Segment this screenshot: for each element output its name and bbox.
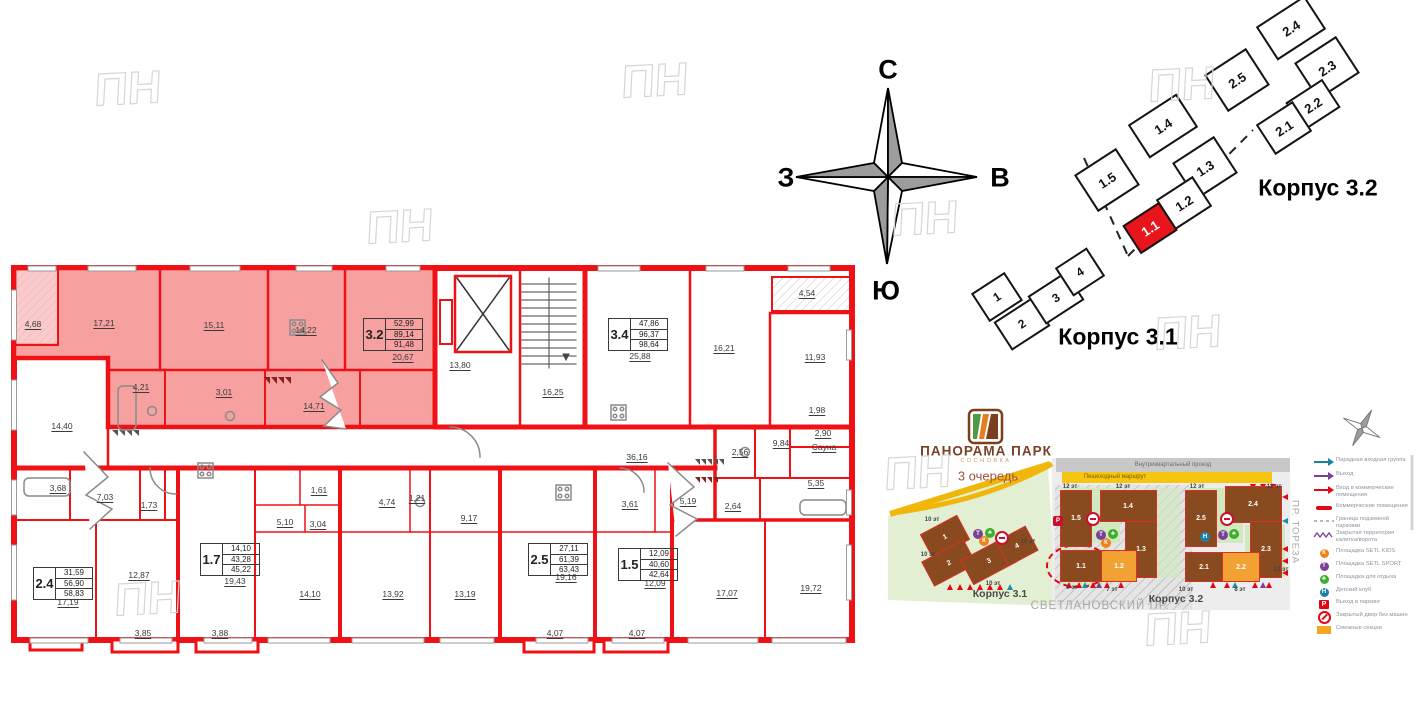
driveway-label: Внутриквартальный проезд xyxy=(1135,462,1212,468)
apartment-id: 2.5 xyxy=(529,544,551,575)
developer-watermark: ПН xyxy=(620,51,689,108)
logo-phase: 3 очередь xyxy=(958,469,1018,484)
room-area-label: 16,21 xyxy=(713,343,734,353)
legend-item-label: Коммерческие помещения xyxy=(1336,503,1408,510)
street-toreza-label: ПР. ТОРЕЗА xyxy=(1290,500,1301,564)
apartment-id: 3.2 xyxy=(364,319,386,350)
developer-watermark: ПН xyxy=(365,197,434,254)
scheme-korpus-32-title: Корпус 3.2 xyxy=(1258,175,1377,202)
site-building-2.1: 2.1 xyxy=(1185,552,1224,582)
room-area-label: 2,90 xyxy=(815,428,832,438)
apartment-area-value: 31,59 xyxy=(56,568,92,579)
room-area-label: 3,88 xyxy=(212,628,229,638)
apartment-area-value: 89,14 xyxy=(386,330,422,341)
apartment-area-value: 14,10 xyxy=(223,544,259,555)
apartment-area-value: 96,37 xyxy=(631,330,667,341)
legend-circle-icon: ♣ xyxy=(1312,574,1336,584)
amenity-icon: К xyxy=(979,536,989,546)
apartment-id: 2.4 xyxy=(34,568,56,599)
apartment-area-value: 63,43 xyxy=(551,565,587,575)
apartment-area-value: 98,64 xyxy=(631,340,667,350)
apartment-area-value: 42,64 xyxy=(641,570,677,580)
logo-mark xyxy=(969,410,1002,443)
site-building-1.4: 1.4 xyxy=(1100,490,1157,522)
room-area-label: 3,01 xyxy=(216,387,233,397)
developer-watermark: ПН xyxy=(1153,303,1222,360)
room-area-label: 17,07 xyxy=(716,588,737,598)
legend-dash-icon xyxy=(1312,516,1336,526)
legend-arrow-icon xyxy=(1312,471,1336,481)
floor-count-label: 7 эт xyxy=(1106,587,1117,593)
legend-item-label: Закрытый двор без машин xyxy=(1336,612,1408,619)
room-area-label: 17,21 xyxy=(93,318,114,328)
room-area-label: 11,93 xyxy=(805,352,826,362)
developer-watermark: ПН xyxy=(1143,599,1212,656)
apartment-table-2.4: 2.431,5956,9058,83 xyxy=(33,567,93,600)
apartment-id: 3.4 xyxy=(609,319,631,350)
site-building-1.2: 1.2 xyxy=(1101,550,1137,582)
room-area-label: 9,84 xyxy=(773,438,790,448)
apartment-area-value: 56,90 xyxy=(56,579,92,590)
amenity-icon: ♣ xyxy=(1229,529,1239,539)
apartment-table-1.7: 1.714,1043,2845,22 xyxy=(200,543,260,576)
legend-nocar-icon xyxy=(1312,612,1336,622)
legend-item: НДетский клуб xyxy=(1312,587,1412,597)
compass-west-label: З xyxy=(778,163,795,194)
site-korpus-31-label: Корпус 3.1 xyxy=(973,588,1028,600)
legend-circle-icon: Т xyxy=(1312,561,1336,571)
floor-count-label: 12 эт xyxy=(1190,484,1205,490)
room-area-label: 14,40 xyxy=(51,421,72,431)
compass-north-label: С xyxy=(878,55,898,86)
parking-exit-icon: P xyxy=(1053,516,1063,526)
room-area-label: 1,21 xyxy=(409,493,426,503)
room-area-label: 2,56 xyxy=(732,447,749,457)
legend-parking-icon: P xyxy=(1312,599,1336,609)
floor-count-label: 8 эт xyxy=(1234,587,1245,593)
room-area-label: 5,10 xyxy=(277,517,294,527)
legend-item-label: Вход в коммерческие помещения xyxy=(1336,485,1412,499)
floor-count-label: 12 эт xyxy=(1063,484,1078,490)
room-area-label: 5,35 xyxy=(808,478,825,488)
floor-count-label: 12 эт xyxy=(1274,567,1289,573)
room-area-label: 1,98 xyxy=(809,405,826,415)
site-building-2.2: 2.2 xyxy=(1222,552,1260,582)
no-car-icon xyxy=(1220,512,1234,526)
logo-subtitle: СОСНОВКА xyxy=(961,458,1012,464)
room-area-label: 13,80 xyxy=(449,360,470,370)
legend-bar-icon xyxy=(1312,503,1336,513)
apartment-id: 1.5 xyxy=(619,549,641,580)
apartment-area-value: 12,09 xyxy=(641,549,677,560)
room-area-label: 14,71 xyxy=(303,401,324,411)
apartment-area-value: 27,11 xyxy=(551,544,587,555)
legend-item-label: Выход в паркинг xyxy=(1336,599,1380,606)
room-area-label: 4,68 xyxy=(25,319,42,329)
floor-count-label: 12 эт xyxy=(1267,484,1282,490)
room-area-label: 13,92 xyxy=(382,589,403,599)
apartment-area-value: 52,99 xyxy=(386,319,422,330)
apartment-area-value: 40,60 xyxy=(641,560,677,571)
legend-zigzag-icon xyxy=(1312,530,1336,540)
room-area-label: 15,11 xyxy=(204,320,225,330)
mini-compass-icon xyxy=(1334,400,1390,455)
room-area-label: 4,07 xyxy=(547,628,564,638)
room-area-label: 3,85 xyxy=(135,628,152,638)
room-area-label: 4,07 xyxy=(629,628,646,638)
legend-item-label: Детский клуб xyxy=(1336,587,1371,594)
room-area-label: 9,17 xyxy=(461,513,478,523)
legend-arrow-icon xyxy=(1312,485,1336,495)
room-area-label: 36,16 xyxy=(626,452,647,462)
floor-count-label: 10 эт xyxy=(925,517,940,523)
floor-plan-page: 4,6817,2115,1114,2220,674,213,0114,7114,… xyxy=(0,0,1416,708)
room-area-label: 3,04 xyxy=(310,519,327,529)
apartment-table-3.4: 3.447,8696,3798,64 xyxy=(608,318,668,351)
balcony-4-68 xyxy=(17,271,57,343)
room-area-label: 25,88 xyxy=(629,351,650,361)
room-area-label: 3,68 xyxy=(50,483,67,493)
floor-count-label: 10 эт xyxy=(1179,587,1194,593)
apartment-area-value: 61,39 xyxy=(551,555,587,566)
amenity-icon: ♣ xyxy=(1108,529,1118,539)
no-car-icon xyxy=(1086,512,1100,526)
legend-item-label: Площадка SETL KIDS xyxy=(1336,548,1395,555)
legend-item: ♣Площадка для отдыха xyxy=(1312,574,1412,584)
no-car-icon xyxy=(995,531,1009,545)
developer-watermark: ПН xyxy=(113,569,182,626)
compass-east-label: В xyxy=(990,163,1010,194)
floor-count-label: 10 эт xyxy=(986,581,1001,587)
room-area-label: Сауна xyxy=(812,442,837,452)
legend-item: Вход в коммерческие помещения xyxy=(1312,485,1412,499)
amenity-icon: К xyxy=(1101,538,1111,548)
legend-item: Парадная входная группа xyxy=(1312,457,1412,467)
developer-watermark: ПН xyxy=(93,59,162,116)
floor-count-label: 9 эт xyxy=(1066,585,1077,591)
apartment-area-value: 45,22 xyxy=(223,565,259,575)
legend-item: Коммерческие помещения xyxy=(1312,503,1412,513)
room-area-label: 14,10 xyxy=(299,589,320,599)
legend-item: Граница подземной парковки xyxy=(1312,516,1412,530)
room-area-label: 1,73 xyxy=(141,500,158,510)
developer-watermark: ПН xyxy=(890,189,959,246)
legend-arrow-icon xyxy=(1312,457,1336,467)
floor-count-label: 10 эт xyxy=(1021,539,1036,545)
legend-item: Выход xyxy=(1312,471,1412,481)
amenity-icon: Т xyxy=(1218,530,1228,540)
legend-item-label: Смежные секции xyxy=(1336,625,1382,632)
apartment-id: 1.7 xyxy=(201,544,223,575)
room-area-label: 19,72 xyxy=(800,583,821,593)
room-area-label: 4,21 xyxy=(133,382,150,392)
developer-watermark: ПН xyxy=(883,443,952,500)
floor-count-label: 12 эт xyxy=(1116,484,1131,490)
legend-item: PВыход в паркинг xyxy=(1312,599,1412,609)
legend-item: Закрытый двор без машин xyxy=(1312,612,1412,622)
developer-watermark: ПН xyxy=(1147,55,1216,112)
room-area-label: 7,03 xyxy=(97,492,114,502)
room-area-label: 20,67 xyxy=(392,352,413,362)
legend-item-label: Площадка SETL SPORT xyxy=(1336,561,1401,568)
legend-item: КПлощадка SETL KIDS xyxy=(1312,548,1412,558)
legend-circle-icon: Н xyxy=(1312,587,1336,597)
legend-item: Закрытая территория калитка/ворота xyxy=(1312,530,1412,544)
legend-item-label: Закрытая территория калитка/ворота xyxy=(1336,530,1412,544)
legend-item: Смежные секции xyxy=(1312,625,1412,635)
legend-item-label: Граница подземной парковки xyxy=(1336,516,1412,530)
apartment-table-1.5: 1.512,0940,6042,64 xyxy=(618,548,678,581)
compass-south-label: Ю xyxy=(872,276,900,307)
amenity-icon: Н xyxy=(1200,532,1210,542)
apartment-table-3.2: 3.252,9989,1491,48 xyxy=(363,318,423,351)
room-area-label: 4,74 xyxy=(379,497,396,507)
room-area-label: 2,64 xyxy=(725,501,742,511)
legend-item-label: Выход xyxy=(1336,471,1353,478)
site-building-1.1: 1.1 xyxy=(1060,550,1102,582)
apartment-area-value: 47,86 xyxy=(631,319,667,330)
legend-item-label: Площадка для отдыха xyxy=(1336,574,1396,581)
room-area-label: 5,19 xyxy=(680,496,697,506)
legend-circle-icon: К xyxy=(1312,548,1336,558)
floor-count-label: 10 эт xyxy=(921,552,936,558)
apartment-area-value: 58,83 xyxy=(56,589,92,599)
room-area-label: 19,43 xyxy=(224,576,245,586)
apartment-table-2.5: 2.527,1161,3963,43 xyxy=(528,543,588,576)
room-area-label: 3,61 xyxy=(622,499,639,509)
room-area-label: 14,22 xyxy=(295,325,316,335)
apartment-area-value: 91,48 xyxy=(386,340,422,350)
room-area-label: 13,19 xyxy=(454,589,475,599)
legend-item: ТПлощадка SETL SPORT xyxy=(1312,561,1412,571)
apartment-area-value: 43,28 xyxy=(223,555,259,566)
legend-swatch-icon xyxy=(1312,625,1336,635)
room-area-label: 1,61 xyxy=(311,485,328,495)
pedestrian-label: Пешеходный маршрут xyxy=(1084,474,1147,480)
legend-item-label: Парадная входная группа xyxy=(1336,457,1406,464)
room-area-label: 4,54 xyxy=(799,288,816,298)
room-area-label: 16,25 xyxy=(542,387,563,397)
